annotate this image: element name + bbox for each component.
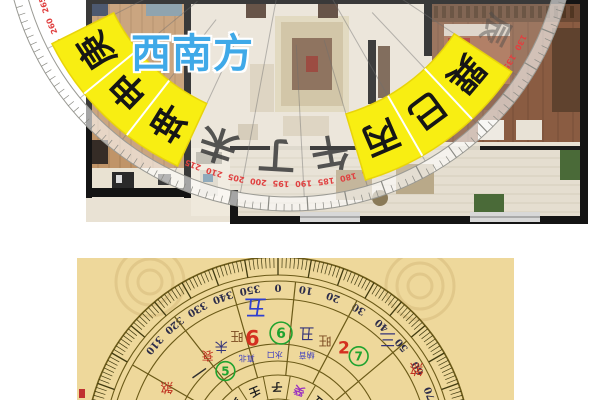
small-blue-label: 納音 bbox=[299, 350, 315, 360]
feng-shui-analysis-image: 1301351401451501551601651701751801851901… bbox=[0, 0, 600, 400]
scene-svg: 1301351401451501551601651701751801851901… bbox=[0, 0, 600, 400]
circled-number: 7 bbox=[355, 349, 363, 363]
red-degree-label: 190 bbox=[295, 178, 313, 188]
plain-mountain-char: 午 bbox=[308, 127, 353, 177]
red-corner-mark bbox=[79, 389, 85, 398]
plant bbox=[560, 150, 580, 180]
dresser-right bbox=[552, 28, 580, 112]
wall-right bbox=[580, 0, 588, 222]
luopan-item: 煞 bbox=[410, 360, 424, 376]
circled-number: 6 bbox=[276, 326, 286, 342]
luopan-item: 丑 bbox=[299, 324, 314, 342]
mountain-char: 子 bbox=[271, 380, 282, 393]
small-blue-label: 水口 bbox=[267, 350, 283, 360]
nightstand bbox=[516, 120, 542, 140]
direction-label: 西南方 bbox=[131, 33, 254, 75]
luopan-item: 旺 bbox=[230, 328, 243, 343]
wardrobe-tooth bbox=[570, 6, 574, 18]
luopan-degree-label: 0 bbox=[274, 282, 281, 293]
wall-bottom-left bbox=[86, 188, 190, 197]
washer-door bbox=[116, 175, 122, 183]
red-degree-label: 195 bbox=[272, 179, 289, 189]
luopan-item: 2 bbox=[338, 338, 350, 358]
plain-mountain-char: 丁 bbox=[256, 132, 296, 178]
luopan-item: 五 bbox=[244, 294, 267, 320]
luopan-item: 旺 bbox=[319, 332, 332, 347]
luopan-item: 三 bbox=[379, 328, 396, 348]
small-blue-label: 真北 bbox=[239, 353, 255, 363]
washer-icon bbox=[112, 172, 134, 188]
luopan-panel: 010203040506070350340330320310亥壬子癸丑艮真北水口… bbox=[77, 248, 514, 400]
luopan-item: 煞 bbox=[160, 379, 173, 394]
luopan-item: 衰 bbox=[202, 348, 214, 363]
luopan-item: 未 bbox=[215, 338, 228, 353]
luopan-item: 6 bbox=[245, 326, 260, 350]
circled-number: 5 bbox=[221, 364, 229, 378]
